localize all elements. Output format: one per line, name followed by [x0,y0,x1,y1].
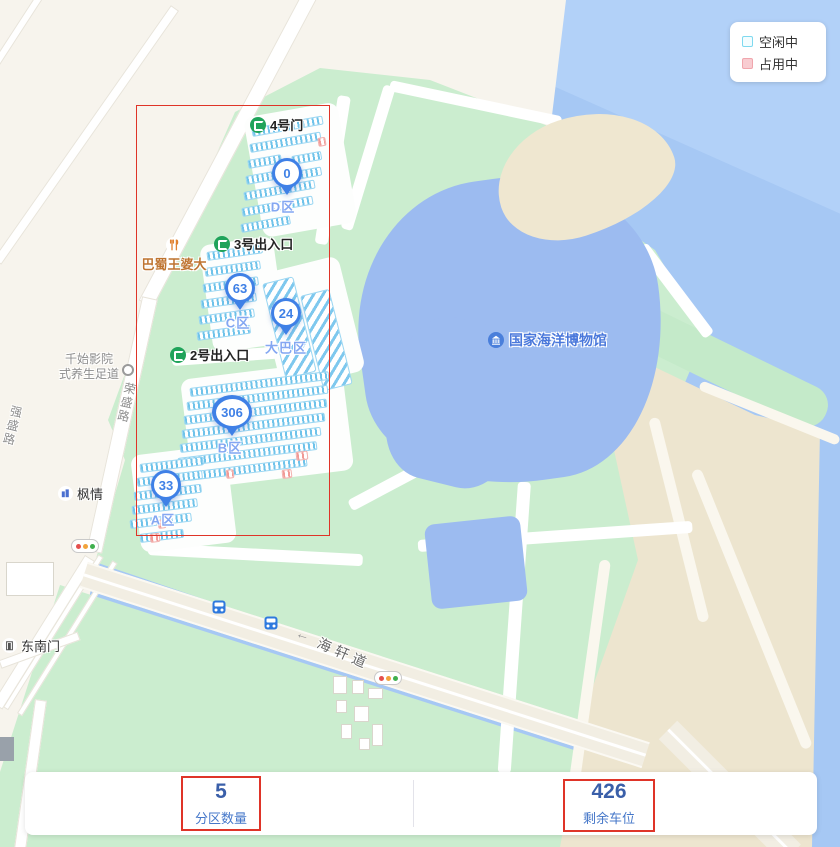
traffic-light-icon [71,539,99,553]
zone-count: 33 [154,473,178,497]
building-footprint [372,724,383,746]
gate-label: 4号门 [270,115,303,134]
gate-marker-3: 3号出入口 [214,234,293,253]
pin-tail [279,325,293,335]
pin-circle: 0 [272,158,302,188]
free-swatch-icon [742,36,753,47]
zone-count: 306 [216,399,249,426]
building-footprint-dark [0,737,14,761]
stat-value: 5 [195,780,247,804]
zone-pin-bus[interactable]: 24 [271,298,301,335]
bus-stop-icon [265,617,278,630]
pin-tail [159,497,173,507]
stats-bar: 5 分区数量 426 剩余车位 [25,772,817,835]
pin-tail [225,426,239,436]
building-footprint [354,706,369,722]
stat-zone-count: 5 分区数量 [195,780,247,827]
gate-icon [170,347,186,363]
museum-icon [488,332,504,348]
stat-label: 剩余车位 [583,808,635,827]
parking-row-occupied [317,137,326,147]
building-footprint [336,700,347,713]
building-icon [58,486,73,501]
zone-label-d: D区 [271,197,295,216]
zone-label-bus: 大巴区 [265,338,307,357]
zone-pin-c[interactable]: 63 [225,273,255,310]
poi-museum: 国家海洋博物馆 [488,330,607,350]
gate-label: 2号出入口 [190,345,249,364]
building-footprint [352,680,364,694]
pin-tail [233,300,247,310]
building-footprint [368,688,383,699]
bus-stop-icon [213,601,226,614]
parking-row-occupied [149,533,160,543]
parking-row-occupied [225,469,234,479]
zone-label-b: B区 [218,438,242,457]
zone-label-c: C区 [226,313,250,332]
poi-label: 东南门 [21,636,60,655]
legend-item-occupied[interactable]: 占用中 [742,52,814,74]
door-icon [2,638,17,653]
restaurant-icon [166,237,182,253]
poi-dot-icon [122,364,134,376]
poi-fengqing: 枫情 [58,484,103,503]
gate-marker-2: 2号出入口 [170,345,249,364]
museum-building [424,515,528,610]
traffic-light-icon [374,671,402,685]
poi-label: 国家海洋博物馆 [509,330,607,350]
poi-label: 枫情 [77,484,103,503]
legend-label: 占用中 [759,54,798,73]
parking-app-screen: 4号门 3号出入口 2号出入口 D区 C区 大巴区 B区 A区 0 63 24 [0,0,840,847]
building-footprint [359,738,370,750]
pin-circle: 63 [225,273,255,303]
parking-row-occupied [281,469,292,479]
zone-count: 0 [275,161,299,185]
gate-marker-4: 4号门 [250,115,303,134]
map-canvas[interactable]: 4号门 3号出入口 2号出入口 D区 C区 大巴区 B区 A区 0 63 24 [0,0,840,847]
pin-circle: 306 [212,395,252,429]
legend-card: 空闲中 占用中 [730,22,826,82]
stat-value: 426 [583,780,635,804]
zone-label-a: A区 [151,510,175,529]
poi-restaurant: 巴蜀王婆大 [138,237,210,273]
building-footprint [341,724,352,739]
pin-circle: 33 [151,470,181,500]
stat-remaining-spots: 426 剩余车位 [583,780,635,827]
occupied-swatch-icon [742,58,753,69]
building-footprint [333,676,347,694]
parking-row-occupied [295,451,308,461]
gate-icon [250,117,266,133]
pin-tail [280,185,294,195]
zone-count: 63 [228,276,252,300]
poi-label: 巴蜀王婆大 [138,254,210,273]
building-footprint [6,562,54,596]
stat-label: 分区数量 [195,808,247,827]
zone-pin-a[interactable]: 33 [151,470,181,507]
pin-circle: 24 [271,298,301,328]
legend-item-free[interactable]: 空闲中 [742,30,814,52]
stats-divider [413,780,414,827]
zone-count: 24 [274,301,298,325]
gate-icon [214,236,230,252]
gate-label: 3号出入口 [234,234,293,253]
zone-pin-d[interactable]: 0 [272,158,302,195]
legend-label: 空闲中 [759,32,798,51]
zone-pin-b[interactable]: 306 [212,395,252,436]
poi-southeast-gate: 东南门 [2,636,60,655]
